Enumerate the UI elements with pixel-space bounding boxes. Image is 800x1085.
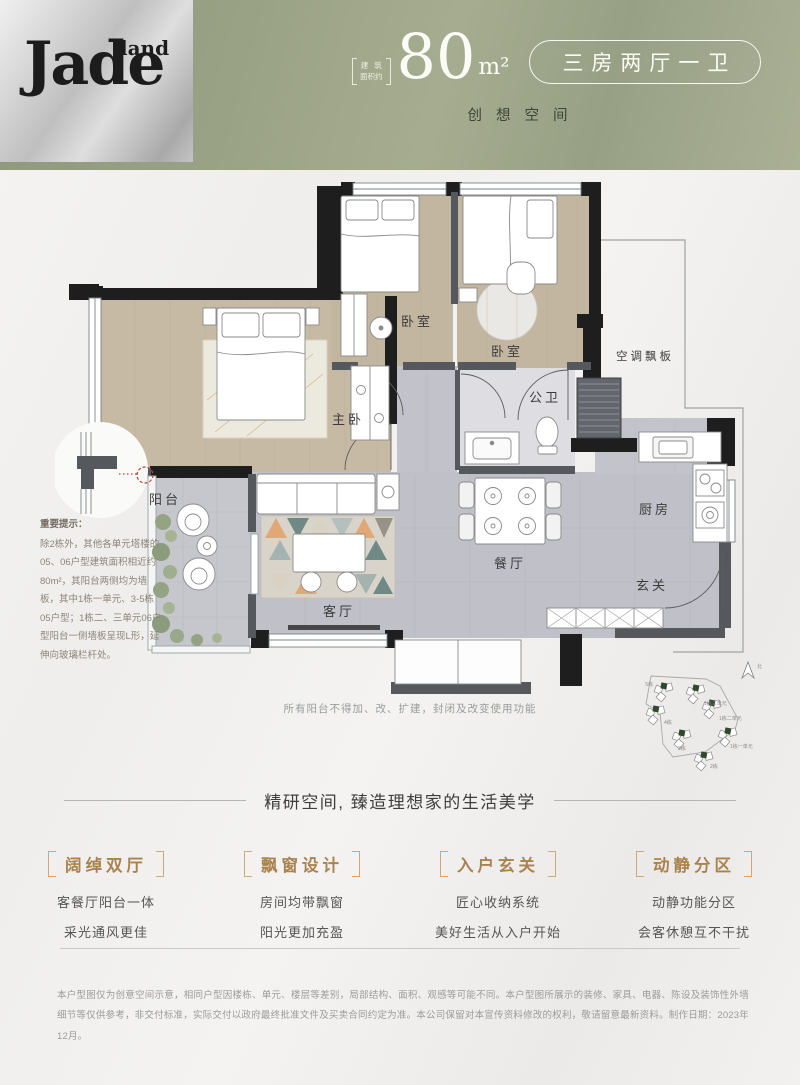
feature-title: 飘窗设计	[261, 852, 343, 876]
feature-title: 入户玄关	[457, 852, 539, 876]
room-label-bedroom-right: 卧室	[491, 344, 523, 359]
bracket-right-icon	[744, 851, 752, 877]
feature-title: 阔绰双厅	[65, 852, 147, 876]
room-label-kitchen: 厨房	[639, 502, 671, 517]
logo-sub-text: land	[120, 36, 169, 60]
site-label-0: 5栋	[645, 681, 653, 688]
layout-type-badge: 三房两厅一卫	[529, 40, 761, 84]
area-value: 80	[397, 28, 476, 87]
slogan: 创想空间	[350, 104, 685, 125]
room-label-balcony: 阳台	[149, 492, 181, 507]
site-map: 5栋 1栋三单元 4栋 1栋二单元 3栋 1栋一单元 2栋 北	[626, 656, 796, 790]
room-label-bathroom: 公卫	[529, 390, 561, 405]
notice-title: 重要提示：	[40, 516, 162, 535]
section-title-row: 精研空间, 臻造理想家的生活美学	[0, 788, 800, 813]
building-clusters	[646, 682, 737, 770]
brand-logo: Jade land	[0, 0, 193, 162]
section-title: 精研空间, 臻造理想家的生活美学	[264, 788, 535, 813]
feature-desc-1: 客餐厅阳台一体	[31, 892, 181, 911]
feature-entry-foyer: 入户玄关 匠心收纳系统 美好生活从入户开始	[423, 851, 573, 941]
room-label-ac-panel: 空调飘板	[616, 349, 674, 363]
bracket-right-icon	[352, 851, 360, 877]
bracket-left-icon	[440, 851, 448, 877]
bracket-left-icon	[636, 851, 644, 877]
bottom-divider	[60, 948, 740, 949]
feature-desc-2: 会客休憩互不干扰	[619, 922, 769, 941]
feature-zoning: 动静分区 动静功能分区 会客休憩互不干扰	[619, 851, 769, 941]
feature-title: 动静分区	[653, 852, 735, 876]
room-label-bedroom-top: 卧室	[401, 314, 433, 329]
area-unit: m²	[478, 54, 509, 80]
bracket-right-icon	[156, 851, 164, 877]
site-label-3: 1栋二单元	[719, 715, 742, 722]
room-label-master: 主卧	[332, 412, 364, 427]
bracket-right-icon	[386, 58, 391, 85]
site-label-2: 4栋	[664, 719, 672, 726]
feature-desc-1: 动静功能分区	[619, 892, 769, 911]
feature-desc-2: 采光通风更佳	[31, 922, 181, 941]
feature-desc-2: 美好生活从入户开始	[423, 922, 573, 941]
site-label-5: 1栋一单元	[730, 743, 753, 750]
feature-double-hall: 阔绰双厅 客餐厅阳台一体 采光通风更佳	[31, 851, 181, 941]
area-label: 建筑 面积约	[357, 58, 386, 85]
feature-desc-2: 阳光更加充盈	[227, 922, 377, 941]
room-label-living: 客厅	[323, 604, 355, 619]
room-label-dining: 餐厅	[494, 556, 526, 571]
north-arrow-icon: 北	[742, 662, 762, 678]
site-label-1: 1栋三单元	[704, 700, 727, 707]
site-label-4: 3栋	[678, 745, 686, 752]
site-label-6: 2栋	[710, 763, 718, 770]
feature-bay-window: 飘窗设计 房间均带飘窗 阳光更加充盈	[227, 851, 377, 941]
poster-page: Jade land 建筑 面积约 80 m² 三房两厅一卫 创想空间	[0, 0, 800, 1085]
features-section: 精研空间, 臻造理想家的生活美学 阔绰双厅 客餐厅阳台一体 采光通风更佳 飘窗设…	[0, 788, 800, 941]
divider-line-left	[64, 800, 246, 801]
north-label: 北	[757, 663, 762, 670]
room-label-foyer: 玄关	[636, 578, 668, 593]
feature-desc-1: 匠心收纳系统	[423, 892, 573, 911]
area-spec: 建筑 面积约 80 m² 三房两厅一卫	[352, 28, 761, 87]
divider-line-right	[554, 800, 736, 801]
area-label-line1: 建筑	[360, 60, 389, 71]
area-label-brackets: 建筑 面积约	[352, 58, 391, 85]
feature-row: 阔绰双厅 客餐厅阳台一体 采光通风更佳 飘窗设计 房间均带飘窗 阳光更加充盈 入	[0, 851, 800, 941]
bracket-left-icon	[244, 851, 252, 877]
feature-desc-1: 房间均带飘窗	[227, 892, 377, 911]
bracket-left-icon	[48, 851, 56, 877]
important-notice: 重要提示： 除2栋外，其他各单元塔楼的05、06户型建筑面积相近约80m²，其阳…	[40, 516, 162, 665]
disclaimer-text: 本户型图仅为创意空间示意，相同户型因楼栋、单元、楼层等差别，局部结构、面积、观感…	[57, 986, 749, 1047]
area-label-line2: 面积约	[360, 71, 383, 82]
washer-cabinet	[577, 378, 621, 438]
header-banner: Jade land 建筑 面积约 80 m² 三房两厅一卫 创想空间	[0, 0, 800, 170]
bracket-right-icon	[548, 851, 556, 877]
notice-body: 除2栋外，其他各单元塔楼的05、06户型建筑面积相近约80m²，其阳台两侧均为墙…	[40, 536, 162, 666]
